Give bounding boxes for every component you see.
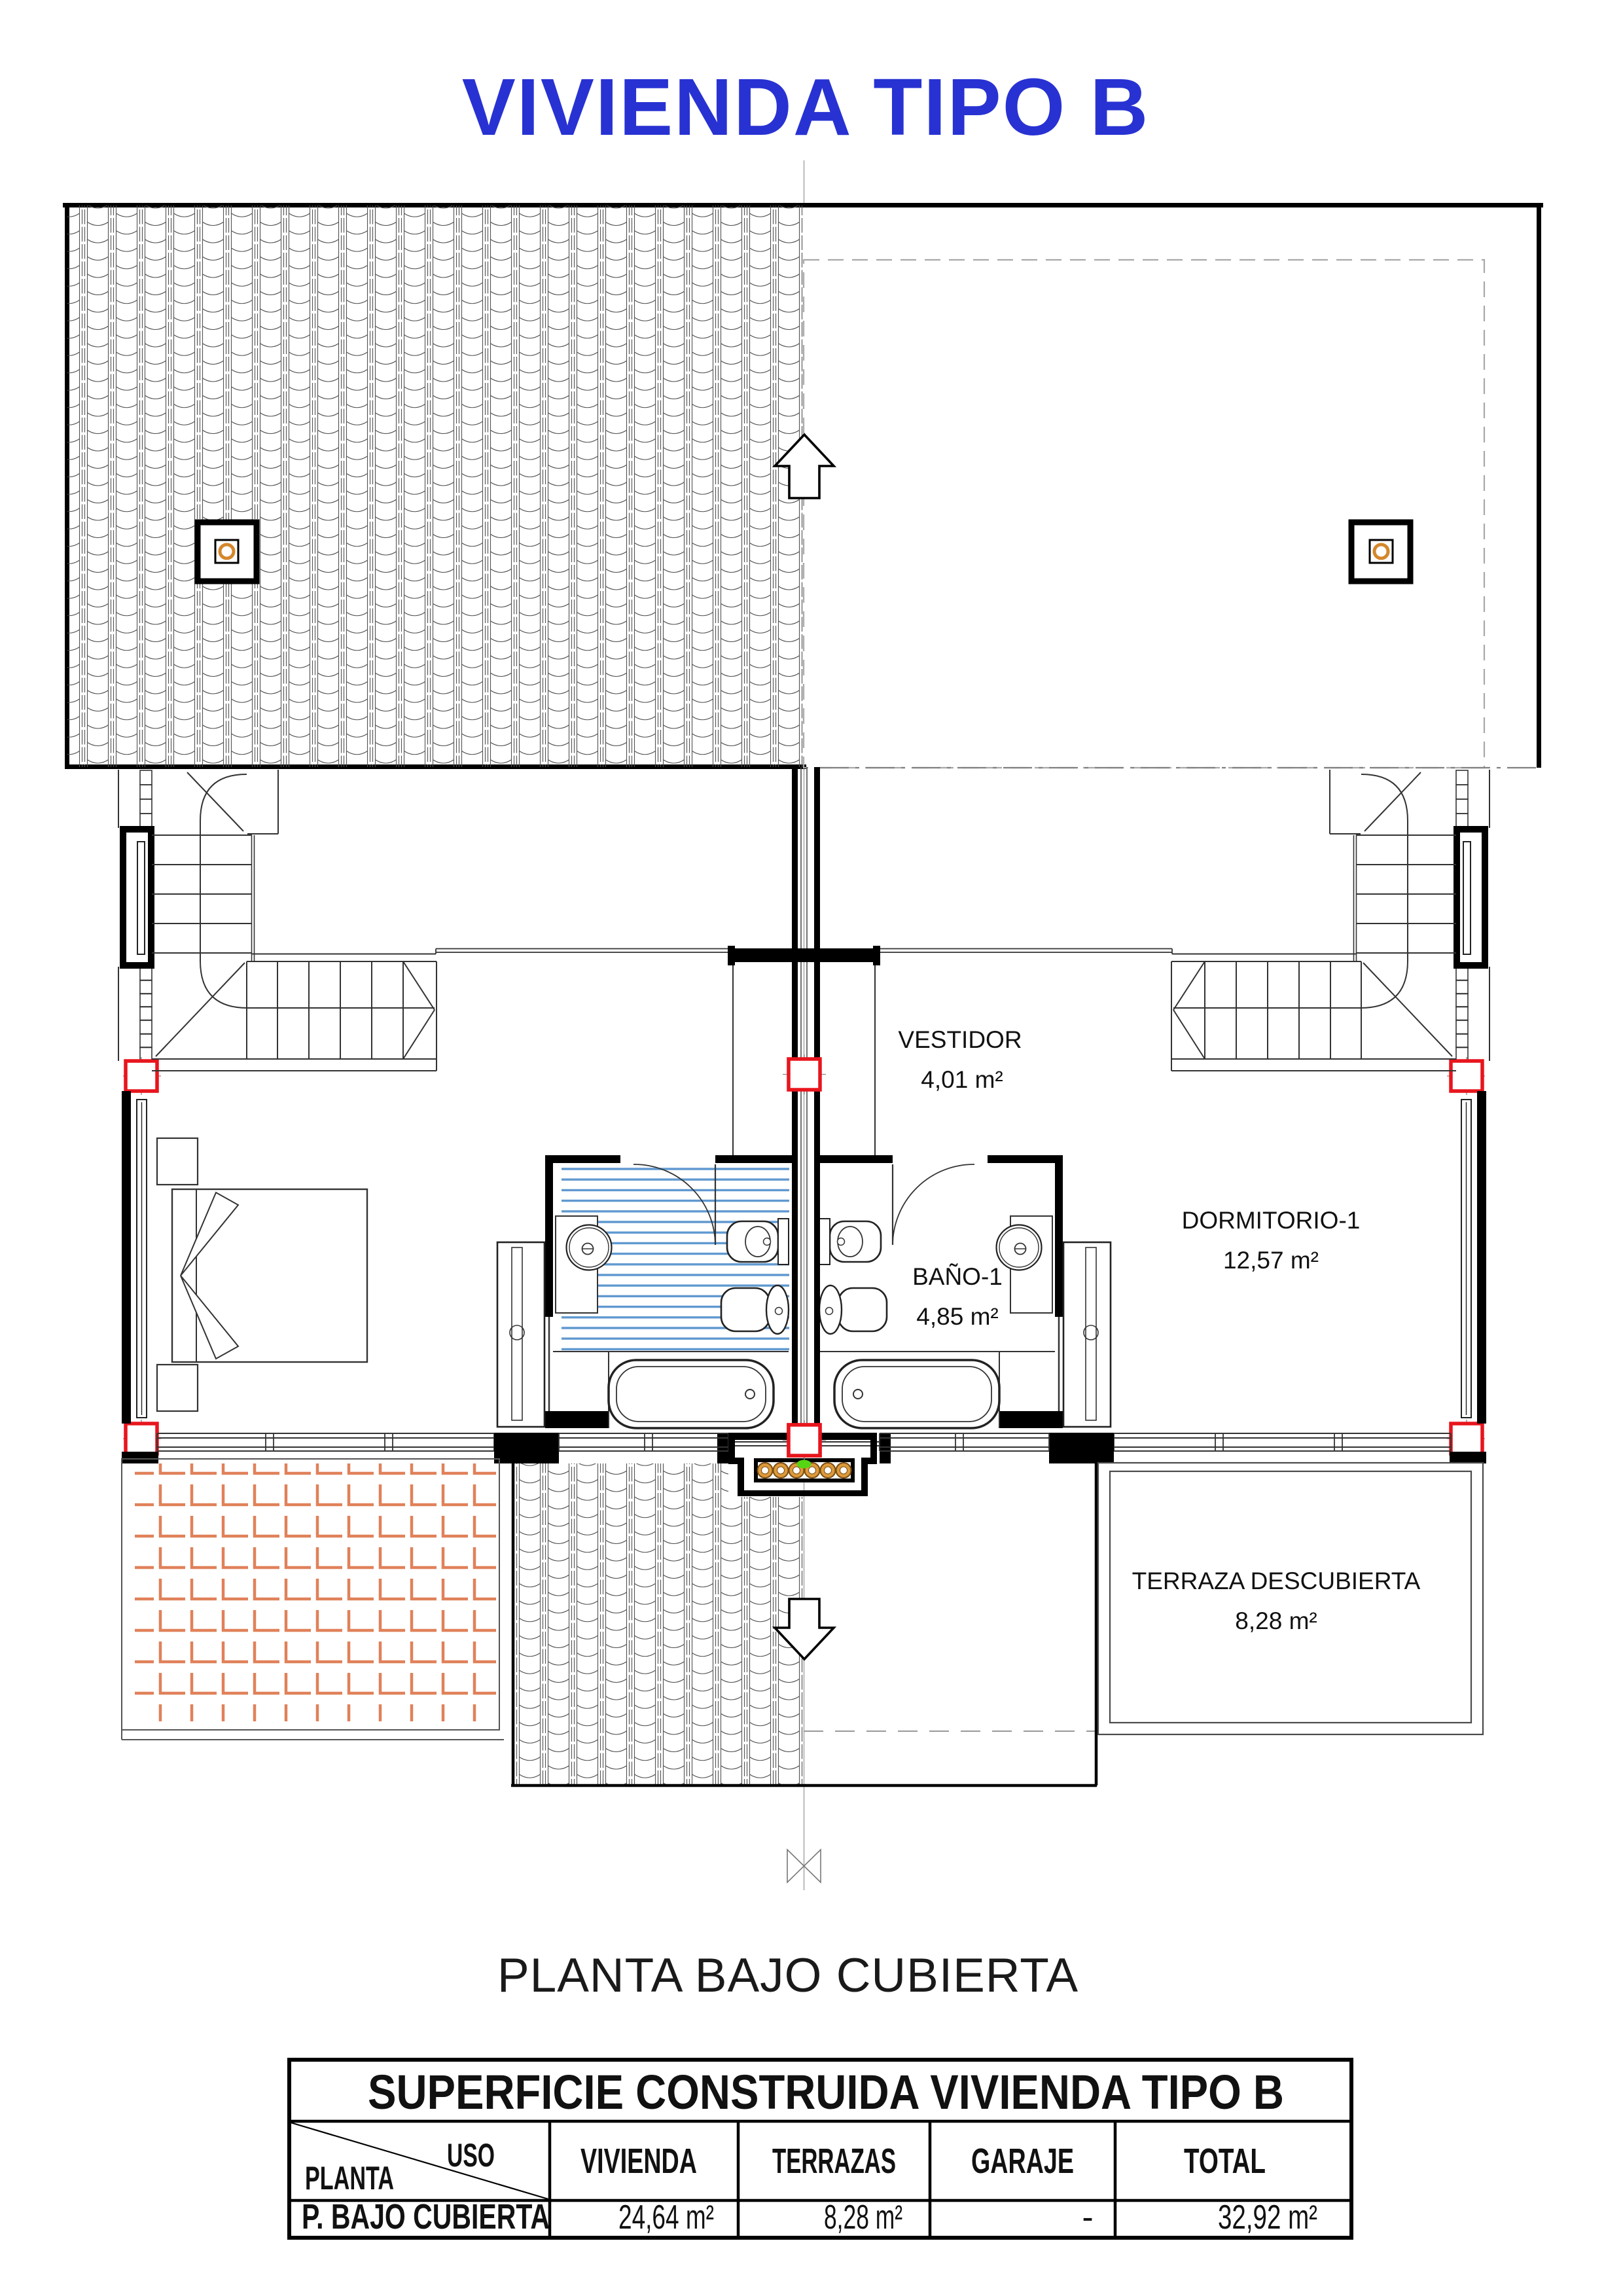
svg-text:DORMITORIO-1: DORMITORIO-1	[1182, 1207, 1361, 1234]
svg-text:P. BAJO CUBIERTA: P. BAJO CUBIERTA	[302, 2197, 550, 2236]
svg-text:GARAJE: GARAJE	[971, 2142, 1074, 2181]
svg-text:BAÑO-1: BAÑO-1	[912, 1263, 1003, 1290]
svg-text:PLANTA: PLANTA	[305, 2160, 394, 2197]
svg-text:SUPERFICIE CONSTRUIDA VIVIENDA: SUPERFICIE CONSTRUIDA VIVIENDA TIPO B	[368, 2065, 1284, 2119]
svg-text:TOTAL: TOTAL	[1184, 2142, 1266, 2181]
svg-text:-: -	[1082, 2198, 1093, 2236]
svg-text:4,01 m²: 4,01 m²	[921, 1066, 1003, 1093]
svg-text:VESTIDOR: VESTIDOR	[898, 1026, 1022, 1053]
svg-text:USO: USO	[447, 2137, 495, 2174]
svg-text:4,85 m²: 4,85 m²	[916, 1303, 998, 1330]
svg-text:12,57 m²: 12,57 m²	[1223, 1247, 1319, 1274]
svg-text:24,64 m²: 24,64 m²	[618, 2198, 714, 2236]
svg-text:32,92 m²: 32,92 m²	[1218, 2198, 1317, 2236]
svg-text:TERRAZA DESCUBIERTA: TERRAZA DESCUBIERTA	[1132, 1568, 1421, 1594]
svg-text:8,28 m²: 8,28 m²	[824, 2198, 902, 2236]
svg-text:PLANTA BAJO CUBIERTA: PLANTA BAJO CUBIERTA	[497, 1949, 1079, 2002]
svg-text:8,28 m²: 8,28 m²	[1235, 1607, 1317, 1634]
svg-text:TERRAZAS: TERRAZAS	[772, 2142, 896, 2181]
svg-text:VIVIENDA: VIVIENDA	[580, 2142, 697, 2181]
svg-text:VIVIENDA TIPO B: VIVIENDA TIPO B	[462, 63, 1150, 152]
